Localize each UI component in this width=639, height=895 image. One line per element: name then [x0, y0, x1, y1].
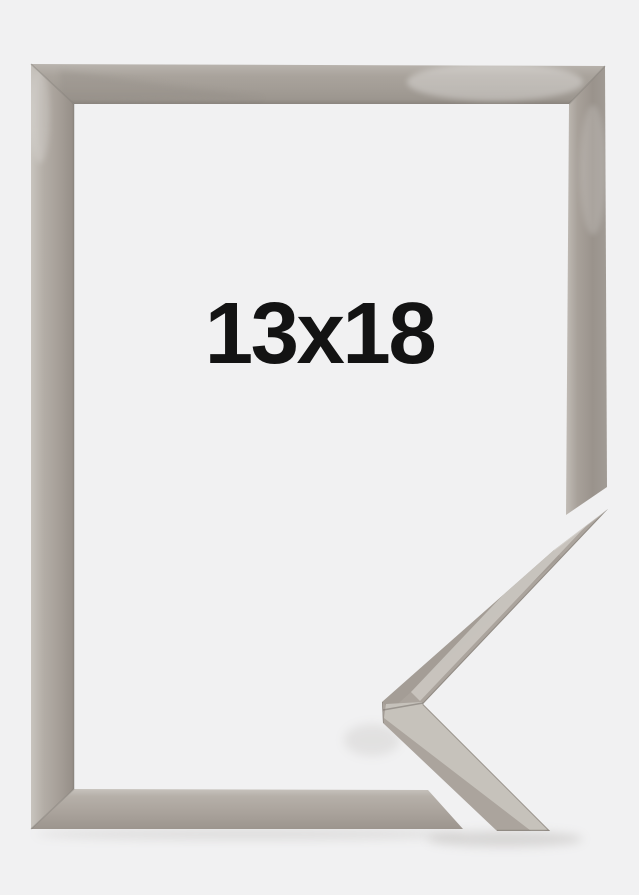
- miter-seams: [31, 64, 605, 829]
- corner-sample-piece: [382, 497, 608, 834]
- product-photo: 13x18: [0, 0, 639, 895]
- frame-body: [30, 63, 607, 829]
- size-label: 13x18: [0, 270, 639, 397]
- frame-illustration: [0, 0, 639, 895]
- frame-bottom-rail: [31, 789, 463, 829]
- frame-left-rail: [31, 64, 74, 829]
